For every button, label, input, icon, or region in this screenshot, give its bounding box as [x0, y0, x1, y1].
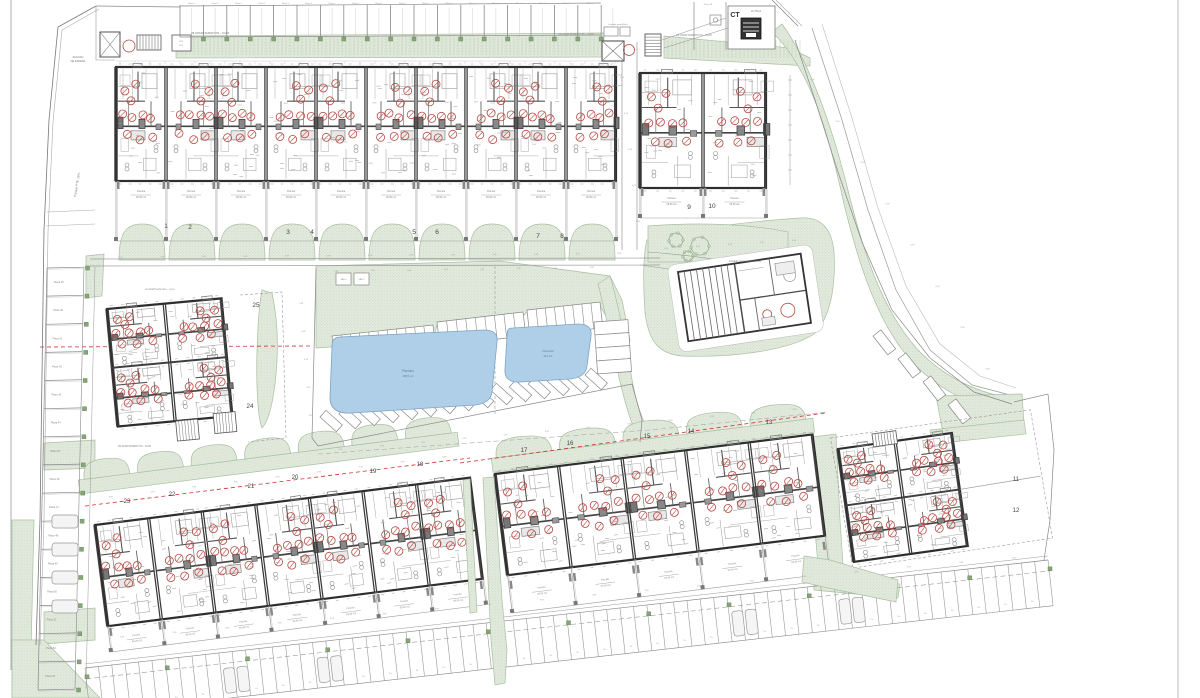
svg-text:22: 22: [169, 492, 176, 498]
svg-text:Plaza 1: Plaza 1: [329, 3, 337, 5]
svg-text:22,75m2: 22,75m2: [751, 9, 762, 13]
svg-text:Pz: Pz: [309, 682, 312, 684]
svg-text:Plaza 40: Plaza 40: [53, 309, 63, 312]
svg-text:Parcela: Parcela: [187, 190, 196, 193]
svg-text:Pz: Pz: [255, 688, 258, 690]
svg-text:2: 2: [188, 224, 192, 231]
svg-text:25: 25: [252, 302, 260, 309]
svg-text:Pz: Pz: [1004, 604, 1007, 606]
svg-text:Plaza 1: Plaza 1: [399, 3, 407, 5]
svg-text:3: 3: [286, 229, 290, 236]
svg-text:16: 16: [567, 441, 574, 447]
svg-text:13: 13: [766, 420, 773, 426]
svg-text:Pz: Pz: [389, 673, 392, 675]
svg-text:10: 10: [708, 203, 716, 210]
svg-text:Pz: Pz: [202, 694, 205, 696]
svg-text:Pz: Pz: [764, 631, 767, 633]
svg-text:99,99 m2: 99,99 m2: [436, 196, 447, 199]
svg-text:Pz: Pz: [416, 670, 419, 672]
svg-text:LUZ: LUZ: [179, 45, 184, 47]
svg-text:Parcela: Parcela: [587, 190, 596, 193]
svg-text:Plaza 1: Plaza 1: [188, 3, 196, 5]
svg-text:Pz: Pz: [550, 655, 553, 657]
svg-text:Pz: Pz: [790, 628, 793, 630]
svg-text:Plaza 39: Plaza 39: [54, 281, 64, 284]
svg-text:Plaza 1: Plaza 1: [352, 3, 360, 5]
svg-text:20: 20: [292, 475, 299, 481]
svg-text:Parcela: Parcela: [537, 190, 546, 193]
svg-text:Pz: Pz: [897, 616, 900, 618]
svg-text:Plaza 1: Plaza 1: [539, 3, 547, 5]
svg-text:18: 18: [417, 462, 424, 468]
svg-text:DE ESPERA: DE ESPERA: [71, 59, 86, 63]
svg-text:Pz: Pz: [443, 667, 446, 669]
svg-text:Plaza 49: Plaza 49: [48, 562, 58, 565]
svg-text:Pz: Pz: [523, 658, 526, 660]
svg-text:Pz: Pz: [1031, 601, 1034, 603]
svg-text:ZAGUAN: ZAGUAN: [73, 55, 84, 59]
svg-text:Plaza 1: Plaza 1: [516, 3, 524, 5]
svg-text:Plaza 48: Plaza 48: [48, 534, 58, 537]
svg-text:7: 7: [536, 233, 540, 240]
svg-text:Pz: Pz: [469, 664, 472, 666]
svg-text:Pz: Pz: [871, 619, 874, 621]
svg-text:VADO: VADO: [358, 278, 364, 281]
svg-text:Parcela: Parcela: [387, 190, 396, 193]
svg-text:28 APARTAMENTOS - COPI: 28 APARTAMENTOS - COPI: [558, 32, 594, 36]
svg-text:Pz: Pz: [282, 685, 285, 687]
svg-text:Plaza 43: Plaza 43: [51, 394, 61, 397]
svg-text:Plaza 98: Plaza 98: [704, 4, 713, 6]
svg-text:99,99 m2: 99,99 m2: [730, 203, 741, 206]
svg-text:Plaza 47: Plaza 47: [49, 506, 59, 509]
svg-text:Parcela: Parcela: [437, 190, 446, 193]
svg-text:Parcela: Parcela: [487, 190, 496, 193]
svg-text:Plaza 1: Plaza 1: [563, 3, 571, 5]
svg-text:1: 1: [164, 223, 168, 230]
svg-text:Plaza 45: Plaza 45: [50, 450, 60, 453]
svg-text:Plaza 52: Plaza 52: [46, 647, 56, 650]
svg-text:8: 8: [560, 233, 564, 240]
svg-text:12: 12: [1013, 508, 1020, 514]
svg-text:Plaza 1: Plaza 1: [258, 3, 266, 5]
svg-text:Pz: Pz: [603, 649, 606, 651]
svg-text:Pz: Pz: [683, 640, 686, 642]
svg-text:Pz: Pz: [924, 613, 927, 615]
svg-text:Plaza 1: Plaza 1: [586, 3, 594, 5]
svg-text:11: 11: [1013, 477, 1020, 483]
svg-text:Parcela: Parcela: [137, 190, 146, 193]
svg-text:Pz: Pz: [657, 643, 660, 645]
svg-text:Pz: Pz: [951, 610, 954, 612]
svg-text:Plaza 1: Plaza 1: [446, 3, 454, 5]
svg-text:Plaza 42: Plaza 42: [52, 366, 62, 369]
svg-text:Piscina2: Piscina2: [542, 349, 554, 353]
svg-text:9: 9: [687, 204, 691, 211]
svg-text:Pz: Pz: [576, 652, 579, 654]
svg-text:99,99 m2: 99,99 m2: [667, 203, 678, 206]
svg-text:21: 21: [248, 484, 255, 490]
svg-text:Plaza 53: Plaza 53: [45, 675, 55, 678]
svg-text:Pz: Pz: [710, 637, 713, 639]
svg-text:al.altaPlus&mito...com: al.altaPlus&mito...com: [145, 287, 175, 291]
svg-text:5: 5: [412, 229, 416, 236]
svg-text:298,5 m2: 298,5 m2: [403, 374, 414, 378]
svg-text:Plaza 1: Plaza 1: [305, 3, 313, 5]
svg-text:Plaza 50: Plaza 50: [47, 591, 57, 594]
svg-text:Pz: Pz: [978, 607, 981, 609]
svg-text:96,6 m2: 96,6 m2: [544, 355, 553, 358]
svg-text:Plaza 46: Plaza 46: [50, 478, 60, 481]
svg-text:Plaza 1: Plaza 1: [235, 3, 243, 5]
svg-text:Plaza 1: Plaza 1: [469, 3, 477, 5]
svg-text:28 APARTAMENTOS - COPI: 28 APARTAMENTOS - COPI: [676, 33, 712, 37]
svg-text:Contador agua (act.urbanizac): Contador agua (act.urbanizac): [729, 260, 761, 263]
svg-text:Plaza 1: Plaza 1: [282, 3, 290, 5]
svg-text:19: 19: [370, 469, 377, 475]
svg-text:99,99 m2: 99,99 m2: [386, 196, 397, 199]
svg-text:Plaza 1: Plaza 1: [375, 3, 383, 5]
svg-text:Plaza 1: Plaza 1: [422, 3, 430, 5]
svg-text:Parcela: Parcela: [337, 190, 346, 193]
svg-text:Plaza 44: Plaza 44: [51, 422, 61, 425]
svg-text:99,99 m2: 99,99 m2: [536, 196, 547, 199]
svg-text:14: 14: [688, 429, 695, 435]
svg-text:24: 24: [246, 403, 254, 410]
svg-text:Pz: Pz: [817, 625, 820, 627]
svg-text:Pz: Pz: [630, 646, 633, 648]
svg-text:99,99 m2: 99,99 m2: [336, 196, 347, 199]
svg-text:Piscina1: Piscina1: [402, 369, 414, 373]
svg-text:Parcela: Parcela: [730, 197, 739, 200]
svg-text:Plaza 41: Plaza 41: [53, 337, 63, 340]
svg-text:Plaza 51: Plaza 51: [47, 619, 57, 622]
svg-text:99,99 m2: 99,99 m2: [286, 196, 297, 199]
svg-text:Plaza 1: Plaza 1: [212, 3, 220, 5]
svg-text:Parcela: Parcela: [237, 190, 246, 193]
svg-text:Contador agua (Elect): Contador agua (Elect): [608, 23, 628, 26]
svg-text:Plaza 1: Plaza 1: [492, 3, 500, 5]
svg-text:99,99 m2: 99,99 m2: [236, 196, 247, 199]
svg-text:4: 4: [310, 229, 314, 236]
svg-text:VADO: VADO: [340, 278, 346, 281]
svg-text:28 APARTAMENTOS - COPI: 28 APARTAMENTOS - COPI: [191, 31, 229, 35]
svg-text:6: 6: [435, 229, 439, 236]
svg-text:99,99 m2: 99,99 m2: [586, 196, 597, 199]
svg-text:99,99 m2: 99,99 m2: [186, 196, 197, 199]
svg-text:23: 23: [124, 499, 131, 505]
svg-text:CT: CT: [730, 12, 740, 19]
svg-text:Parcela: Parcela: [287, 190, 296, 193]
svg-text:Pz: Pz: [362, 676, 365, 678]
svg-text:17: 17: [521, 448, 528, 454]
svg-text:15: 15: [644, 434, 651, 440]
svg-text:99,99 m2: 99,99 m2: [486, 196, 497, 199]
svg-text:99,99 m2: 99,99 m2: [136, 196, 147, 199]
svg-text:Parcela: Parcela: [667, 197, 676, 200]
svg-text:28 APARTAMENTOS - COPI: 28 APARTAMENTOS - COPI: [118, 444, 151, 448]
